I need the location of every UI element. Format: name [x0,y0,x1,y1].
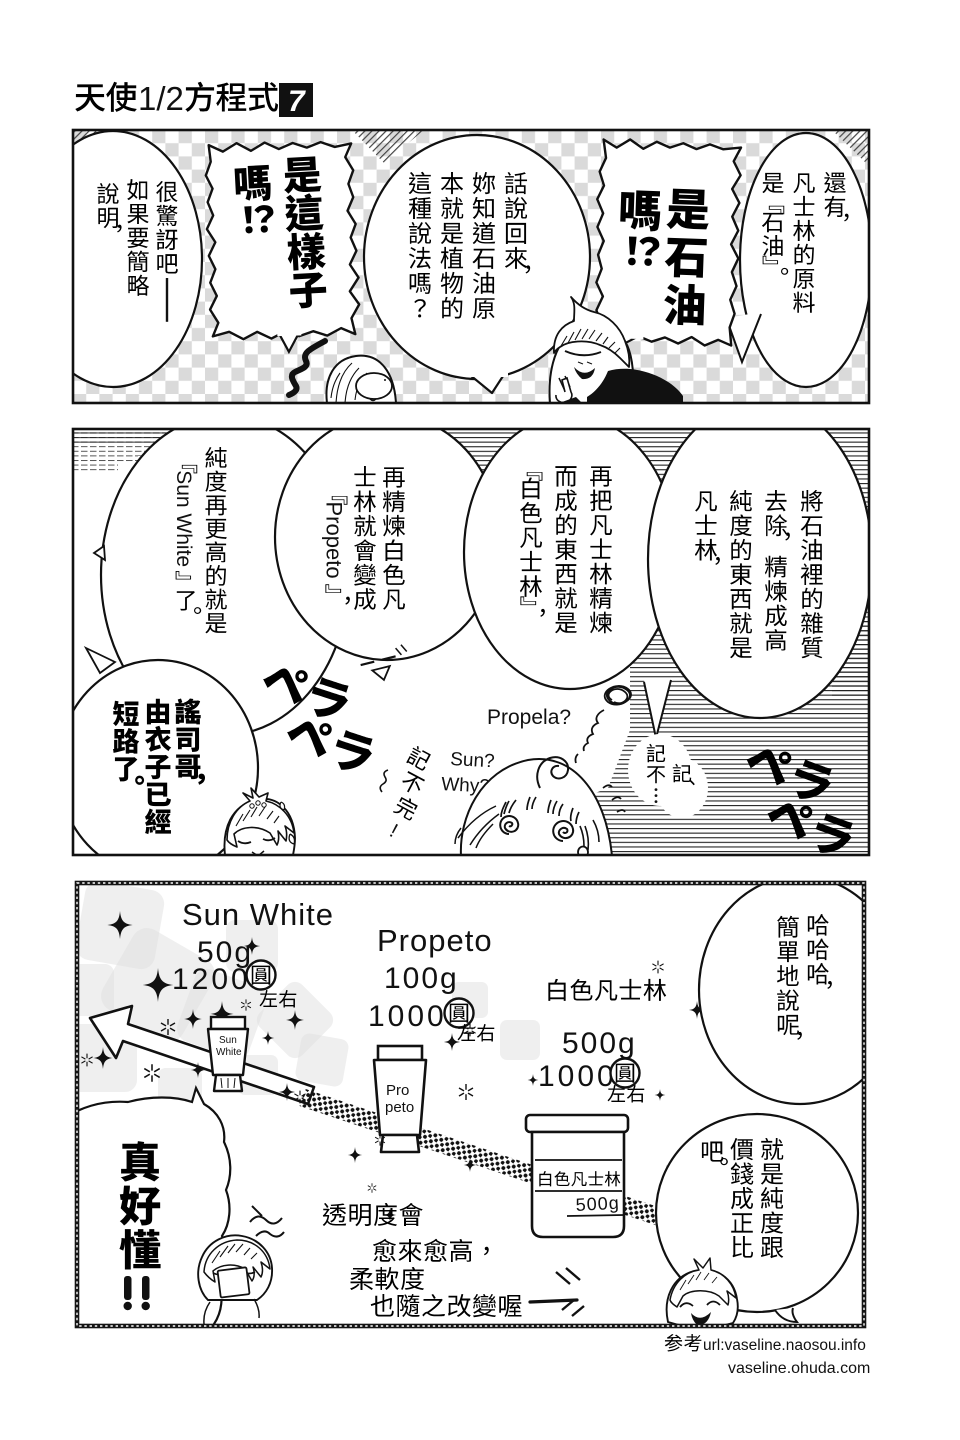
svg-text:7: 7 [288,85,306,118]
svg-text:Sun White: Sun White [172,470,195,567]
svg-text:White: White [216,1047,242,1058]
svg-text:100g: 100g [384,962,459,995]
svg-text:1/2: 1/2 [138,80,184,117]
svg-text:Sun?: Sun? [450,749,495,772]
svg-text:1200: 1200 [172,963,251,996]
svg-text:peto: peto [385,1099,414,1116]
svg-text:1000: 1000 [368,1000,447,1033]
svg-text:Sun White: Sun White [182,897,334,932]
svg-text:vaseline.ohuda.com: vaseline.ohuda.com [728,1360,870,1377]
svg-text:1000: 1000 [538,1060,617,1093]
svg-text:500g: 500g [575,1193,620,1215]
svg-text:Propeto: Propeto [377,923,493,958]
svg-text:500g: 500g [562,1027,637,1060]
svg-text:Propeto: Propeto [322,502,347,579]
svg-text:url:vaseline.naosou.info: url:vaseline.naosou.info [703,1337,866,1354]
svg-text:Propela?: Propela? [487,706,571,729]
svg-text:Sun: Sun [219,1035,237,1046]
svg-text:Pro: Pro [386,1082,409,1099]
